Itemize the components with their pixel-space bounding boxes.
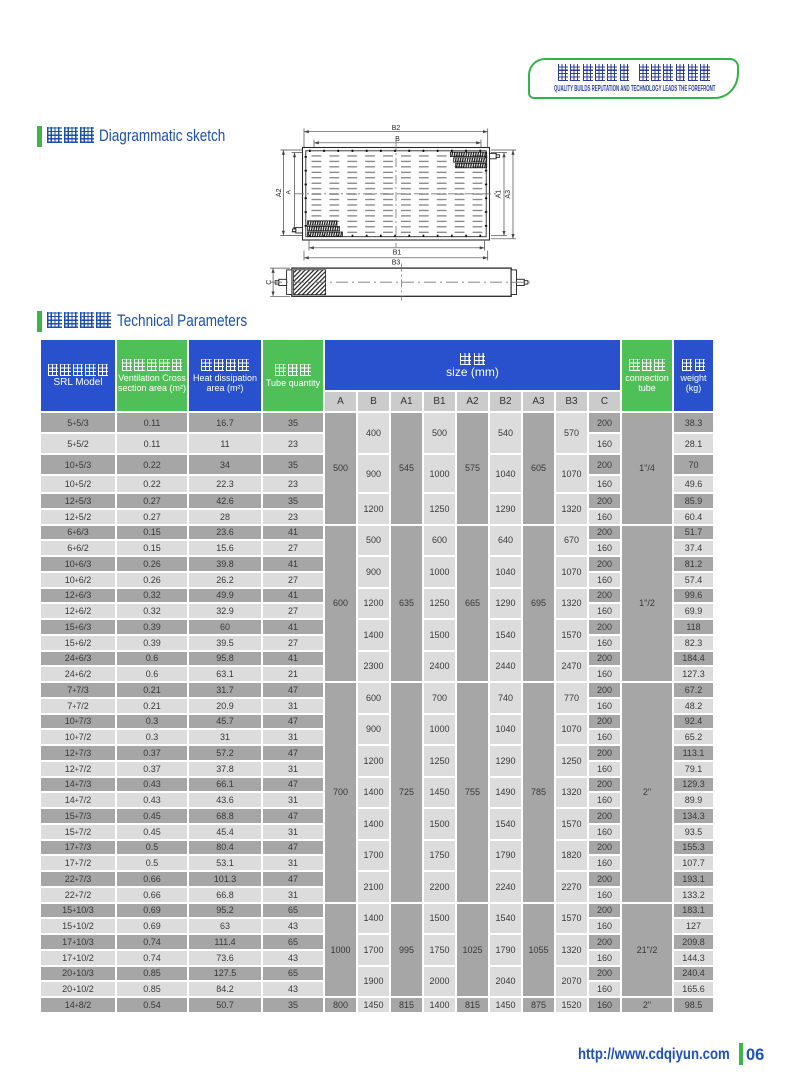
svg-text:A1: A1 [496, 190, 503, 199]
svg-text:B1: B1 [393, 250, 402, 257]
svg-text:A: A [285, 189, 292, 194]
svg-text:B2: B2 [392, 125, 401, 132]
svg-text:B3: B3 [392, 260, 401, 267]
svg-text:A2: A2 [276, 188, 283, 197]
svg-text:A3: A3 [505, 190, 512, 199]
